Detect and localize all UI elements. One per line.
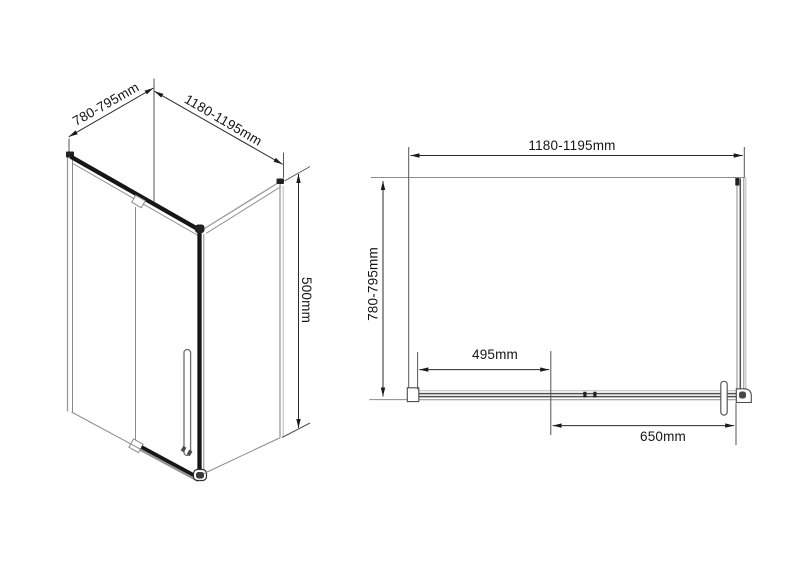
iso-dim-width-line <box>155 91 283 164</box>
iso-door-handle <box>181 350 193 456</box>
iso-dim-width: 1180-1195mm <box>154 79 284 202</box>
plan-track-junction-mark-2 <box>593 392 596 398</box>
iso-dim-height-ext-top <box>285 167 311 182</box>
plan-dim-650: 650mm <box>553 403 736 445</box>
plan-track-left-wall-profile <box>407 388 419 402</box>
plan-door-handle <box>721 381 727 415</box>
plan-view: 1180-1195mm 780-795mm 495mm 650mm <box>366 138 752 445</box>
iso-view: 780-795mm 1180-1195mm 500mm <box>66 79 314 482</box>
plan-track <box>407 381 751 415</box>
technical-drawing-canvas: 780-795mm 1180-1195mm 500mm <box>0 0 800 566</box>
plan-depth-label: 780-795mm <box>366 247 381 321</box>
plan-track-junction-mark-1 <box>583 392 586 398</box>
plan-side-panel <box>735 178 746 394</box>
plan-right-span-label: 650mm <box>640 429 686 444</box>
iso-side-panel-top-outer <box>205 182 280 229</box>
iso-dim-depth: 780-795mm <box>69 79 154 151</box>
plan-corner-connector-pad <box>739 392 746 399</box>
iso-handle-bar <box>184 350 191 456</box>
plan-width-label: 1180-1195mm <box>528 138 615 153</box>
iso-sliding-door <box>129 195 145 452</box>
plan-panel-top-bracket <box>735 178 739 186</box>
plan-left-span-label: 495mm <box>472 347 518 362</box>
iso-left-post <box>66 152 74 413</box>
plan-dim-width: 1180-1195mm <box>411 138 743 156</box>
iso-depth-label: 780-795mm <box>70 79 142 128</box>
iso-corner-post-cap <box>195 225 205 234</box>
shower-enclosure-drawing: 780-795mm 1180-1195mm 500mm <box>0 0 800 566</box>
iso-dim-height-ext-bottom <box>282 423 310 438</box>
iso-width-label: 1180-1195mm <box>182 92 265 149</box>
iso-corner-post <box>194 225 207 481</box>
iso-side-panel-bottom <box>204 438 281 474</box>
plan-boundary <box>369 147 745 400</box>
iso-dim-height: 500mm <box>282 167 314 438</box>
iso-corner-post-foot-pad <box>196 472 204 479</box>
iso-side-panel <box>204 179 284 474</box>
plan-dim-depth: 780-795mm <box>366 181 384 397</box>
iso-side-panel-top-inner <box>206 187 281 234</box>
iso-height-label: 500mm <box>299 277 314 323</box>
iso-side-panel-cap <box>277 179 285 185</box>
